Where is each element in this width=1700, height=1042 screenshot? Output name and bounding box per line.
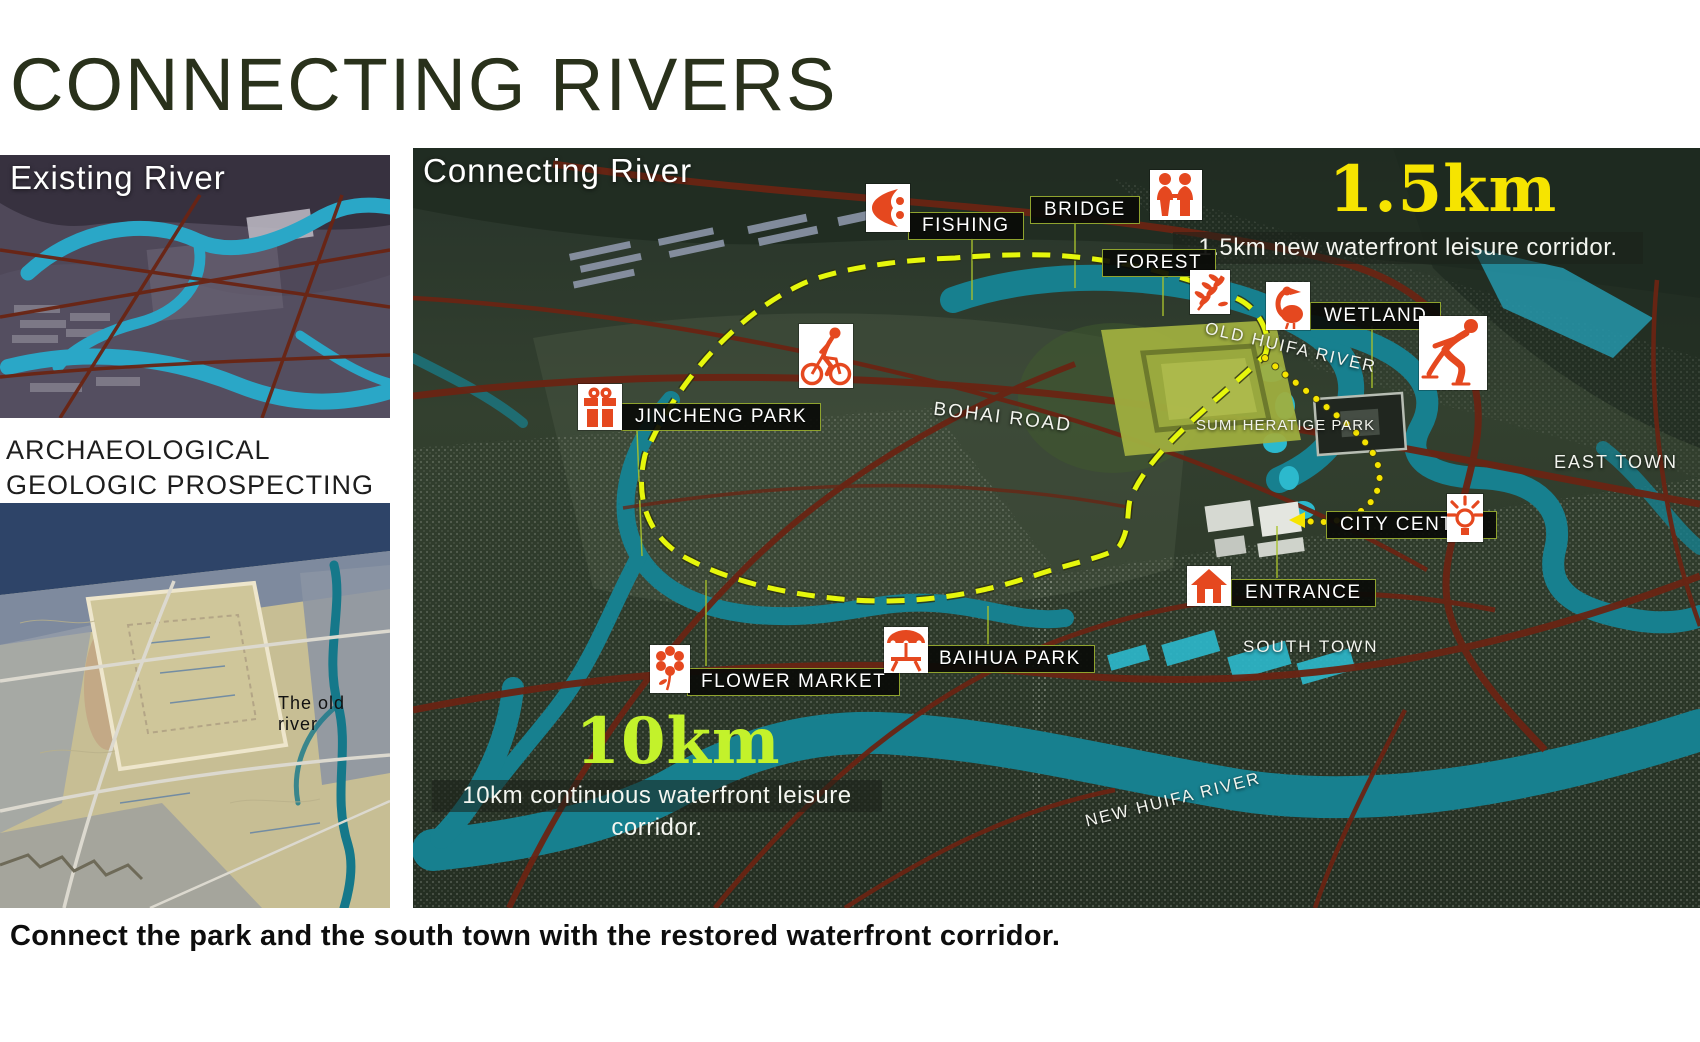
stat-1-5km: 1.5km xyxy=(1318,152,1568,227)
connecting-river-map: Connecting River 1.5km 1.5km new waterfr… xyxy=(413,148,1700,908)
east-town-label: EAST TOWN xyxy=(1554,452,1678,473)
leaf-icon xyxy=(1190,270,1230,314)
couple-icon xyxy=(1150,170,1202,220)
sumi-heratige-park-label: SUMI HERATIGE PARK xyxy=(1196,417,1375,434)
old-river-label: The old river xyxy=(278,693,390,735)
poi-label-flower-market: FLOWER MARKET xyxy=(687,668,900,696)
geologic-map-panel: The old river xyxy=(0,503,390,908)
flower-icon xyxy=(650,645,690,693)
skater-icon xyxy=(1419,316,1487,390)
connecting-river-title: Connecting River xyxy=(423,152,692,190)
south-town-label: SOUTH TOWN xyxy=(1243,637,1379,657)
prospecting-line1: ARCHAEOLOGICAL xyxy=(6,433,374,468)
gift-icon xyxy=(578,384,622,430)
slide: CONNECTING RIVERS xyxy=(0,0,1700,1042)
footer-caption: Connect the park and the south town with… xyxy=(10,920,1060,953)
fish-icon xyxy=(866,184,910,232)
house-icon xyxy=(1187,566,1231,606)
poi-label-jincheng-park: JINCHENG PARK xyxy=(621,403,821,431)
existing-river-title: Existing River xyxy=(10,159,226,197)
poi-label-bridge: BRIDGE xyxy=(1030,196,1140,224)
existing-river-panel: Existing River xyxy=(0,155,390,418)
lightbulb-icon xyxy=(1447,494,1483,542)
prospecting-line2: GEOLOGIC PROSPECTING xyxy=(6,468,374,503)
stat-10km-caption: 10km continuous waterfront leisure corri… xyxy=(432,780,882,812)
stat-10km: 10km xyxy=(553,704,803,779)
pelican-icon xyxy=(1266,282,1310,330)
poi-label-fishing: FISHING xyxy=(908,212,1024,240)
page-title: CONNECTING RIVERS xyxy=(10,42,838,127)
poi-label-baihua-park: BAIHUA PARK xyxy=(925,645,1095,673)
prospecting-heading: ARCHAEOLOGICAL GEOLOGIC PROSPECTING xyxy=(6,433,374,503)
poi-label-entrance: ENTRANCE xyxy=(1231,579,1376,607)
umbrella-icon xyxy=(884,627,928,673)
stat-1-5km-caption: 1.5km new waterfront leisure corridor. xyxy=(1173,232,1643,264)
cyclist-icon xyxy=(799,324,853,388)
